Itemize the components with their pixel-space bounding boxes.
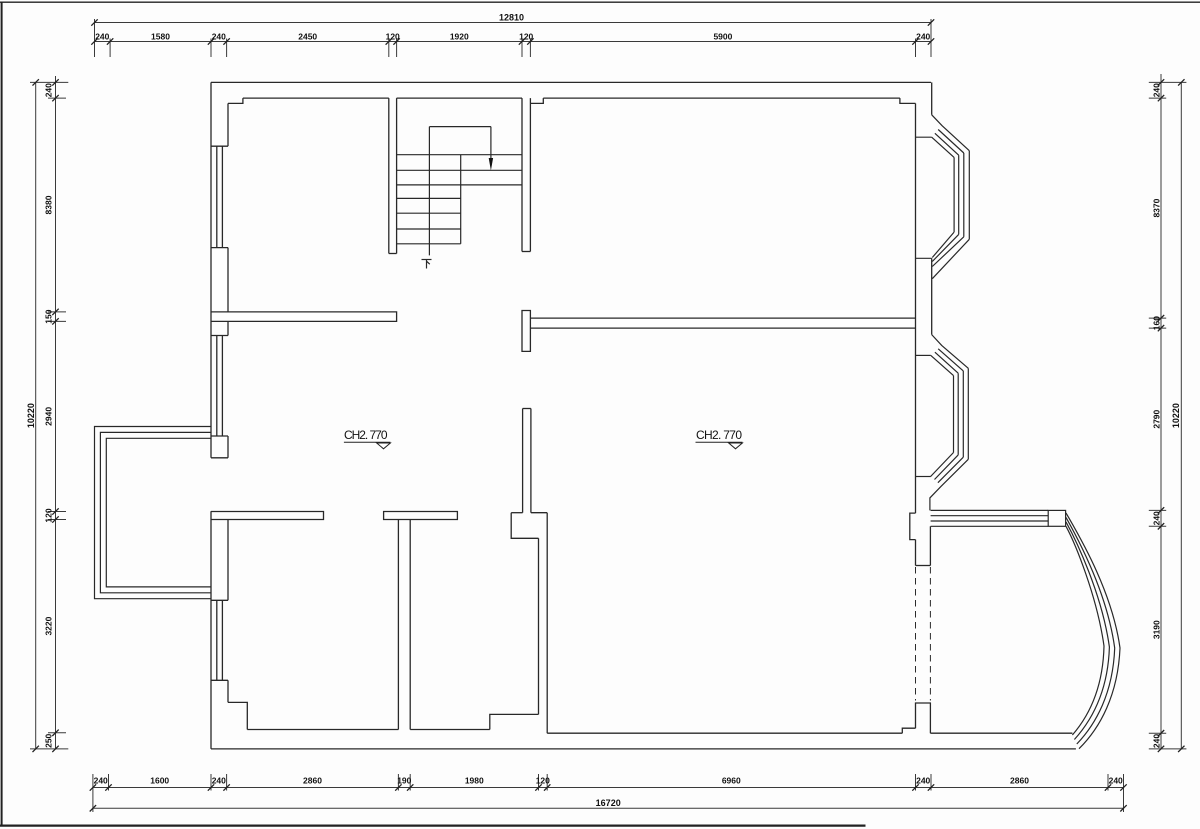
svg-text:3190: 3190: [1152, 620, 1162, 639]
svg-text:240: 240: [916, 775, 930, 785]
svg-text:5900: 5900: [713, 31, 732, 41]
svg-text:CH2. 770: CH2. 770: [696, 428, 742, 442]
svg-text:2940: 2940: [44, 407, 54, 426]
svg-text:CH2. 770: CH2. 770: [344, 428, 388, 442]
svg-text:120: 120: [386, 31, 400, 41]
svg-text:6960: 6960: [722, 775, 741, 785]
svg-text:190: 190: [397, 775, 411, 785]
svg-text:12810: 12810: [499, 12, 524, 22]
svg-text:120: 120: [519, 31, 533, 41]
svg-text:3220: 3220: [44, 616, 54, 635]
svg-text:250: 250: [44, 733, 54, 747]
svg-text:16720: 16720: [596, 798, 621, 808]
svg-text:240: 240: [44, 83, 54, 97]
svg-text:10220: 10220: [26, 403, 36, 428]
svg-text:240: 240: [916, 31, 930, 41]
svg-text:1920: 1920: [450, 31, 469, 41]
svg-text:240: 240: [1109, 775, 1123, 785]
svg-text:2860: 2860: [1010, 775, 1029, 785]
svg-text:1600: 1600: [150, 775, 169, 785]
svg-text:1580: 1580: [151, 31, 170, 41]
svg-text:240: 240: [94, 775, 108, 785]
svg-text:240: 240: [1152, 83, 1162, 97]
svg-text:2860: 2860: [303, 775, 322, 785]
svg-text:2790: 2790: [1152, 409, 1162, 428]
svg-text:150: 150: [44, 309, 54, 323]
svg-text:1980: 1980: [465, 775, 484, 785]
svg-text:240: 240: [95, 31, 109, 41]
svg-text:120: 120: [44, 508, 54, 522]
svg-text:8380: 8380: [44, 195, 54, 214]
svg-text:8370: 8370: [1152, 198, 1162, 217]
svg-text:120: 120: [536, 775, 550, 785]
svg-text:240: 240: [1152, 511, 1162, 525]
svg-text:160: 160: [1152, 316, 1162, 330]
svg-text:240: 240: [212, 31, 226, 41]
svg-text:240: 240: [212, 775, 226, 785]
svg-text:10220: 10220: [1171, 403, 1181, 428]
svg-text:240: 240: [1152, 734, 1162, 748]
svg-text:2450: 2450: [298, 31, 317, 41]
